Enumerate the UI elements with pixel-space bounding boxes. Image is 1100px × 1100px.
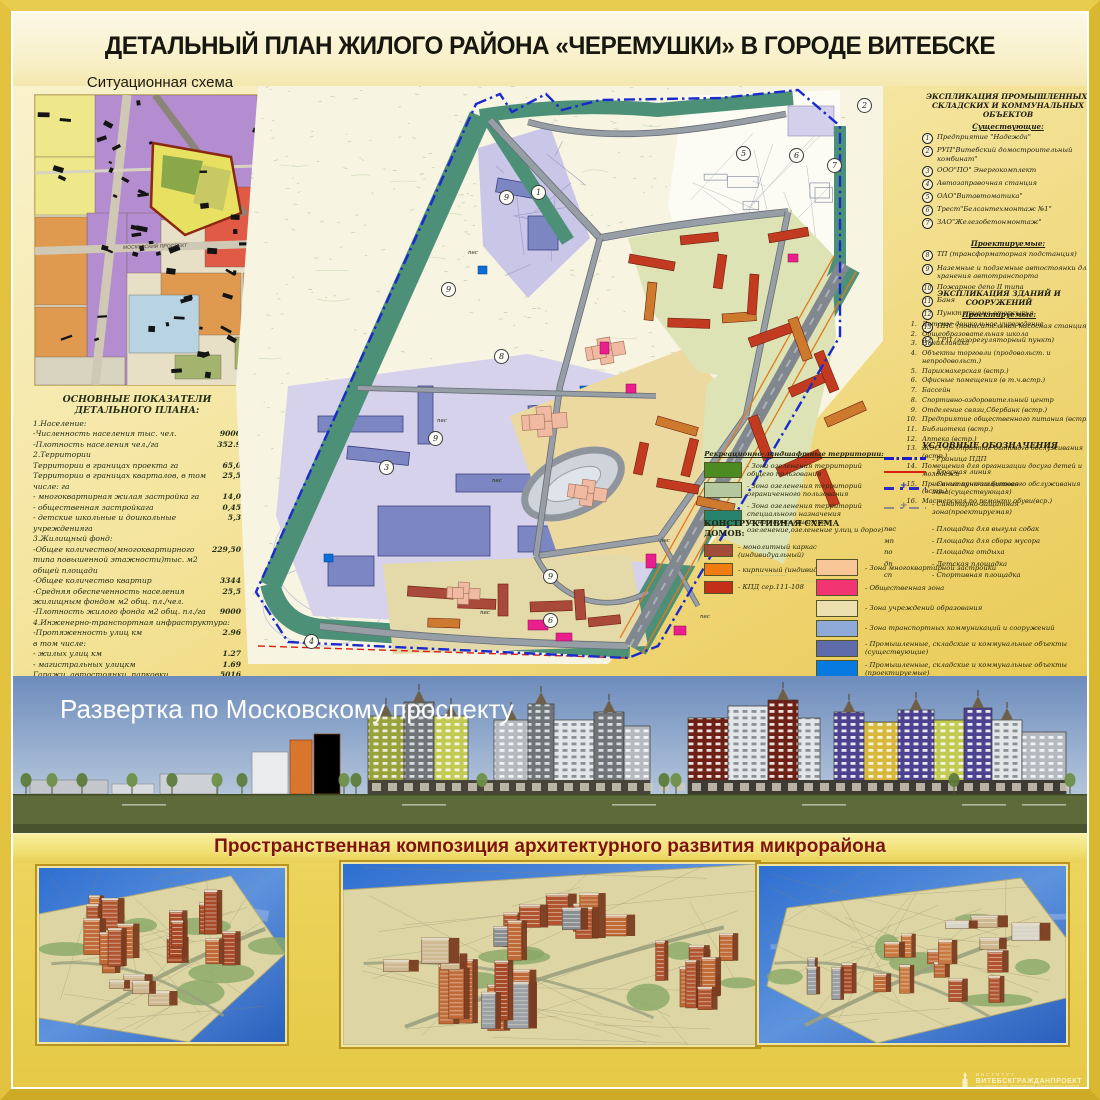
list-item: 6. Офисные помещения (в т.ч.встр.) xyxy=(903,377,1095,385)
item-number: 7. xyxy=(903,387,922,395)
industrial-explication-title2: СКЛАДСКИХ И КОММУНАЛЬНЫХ ОБЪЕКТОВ xyxy=(922,101,1094,119)
legend-label: - Зона озеленения территорий общего поль… xyxy=(747,462,884,478)
list-item: 7. Бассейн xyxy=(903,387,1095,395)
legend-label: - Промышленные, складские и коммунальные… xyxy=(865,661,1094,677)
indicator-row: -Плотность жилого фонда м2 общ. пл./га 9… xyxy=(33,607,241,617)
color-chip xyxy=(704,563,733,576)
list-item: 4. Объекты торговли (продовольст. и непр… xyxy=(903,350,1095,366)
item-label: Предприятие "Надежда" xyxy=(937,133,1031,141)
legend-item: - Зона транспортных коммуникаций и соору… xyxy=(816,620,1094,637)
indicator-label: -Плотность жилого фонда м2 общ. пл./га xyxy=(33,607,216,617)
item-number: 11. xyxy=(903,426,922,434)
list-item: 2. Общеобразовательная школа xyxy=(903,331,1095,339)
item-number: 5 xyxy=(922,192,933,203)
indicator-row: -Численность населения тыс. чел. 9000 xyxy=(33,429,241,439)
legend-label: - Промышленные, складские и коммунальные… xyxy=(865,640,1094,656)
indicator-row: -Протяженность улиц км 2.96 xyxy=(33,628,241,638)
color-chip xyxy=(816,559,858,576)
item-number: 4 xyxy=(922,179,933,190)
indicator-row: - общественная застройкага 0,45 xyxy=(33,503,241,513)
item-label: РУП"Витебский домостроительный комбинат" xyxy=(937,146,1094,163)
indicator-row: -Общее количество квартир 3344 xyxy=(33,576,241,586)
item-label: ТП (трансформаторная подстанция) xyxy=(937,250,1077,258)
symbol-row: - Санитарно-защитная зона(проектируемая) xyxy=(884,500,1096,516)
item-label: ОАО"Витавтоматика" xyxy=(937,192,1023,200)
indicator-label: Территории в границах кварталов, в том ч… xyxy=(33,471,219,492)
recreation-legend-title: Рекреационно-ландшафтные территории: xyxy=(704,450,884,458)
poster-root: ДЕТАЛЬНЫЙ ПЛАН ЖИЛОГО РАЙОНА «ЧЕРЕМУШКИ»… xyxy=(0,0,1100,1100)
color-chip xyxy=(704,462,742,478)
indicator-label: 1.Население: xyxy=(33,419,237,429)
item-number: 1. xyxy=(903,321,922,329)
indicator-label: Территории в границах проекта га xyxy=(33,461,219,471)
symbol-label: - Санитарно-защитная зона(проектируемая) xyxy=(932,500,1096,516)
map-badge: 6 xyxy=(789,148,804,163)
map-badge: 7 xyxy=(827,158,842,173)
map-badge: 9 xyxy=(543,569,558,584)
indicator-label: -Средняя обеспеченность населения жилищн… xyxy=(33,587,219,608)
item-number: 8 xyxy=(922,250,933,261)
list-item: 8 ТП (трансформаторная подстанция) xyxy=(922,250,1094,261)
legend-label: - Зона учреждений образования xyxy=(865,604,982,612)
legend-item: - Зона многоквартирной застройки xyxy=(816,559,1094,576)
map-area-label: пвс xyxy=(437,418,447,424)
buildings-planned-header: Проектируемые: xyxy=(903,310,1095,319)
list-item: 5. Парикмахерская (встр.) xyxy=(903,368,1095,376)
list-item: 5 ОАО"Витавтоматика" xyxy=(922,192,1094,203)
map-area-label: пвс xyxy=(468,250,478,256)
item-label: Общеобразовательная школа xyxy=(922,331,1028,339)
legend-item: - Зона озеленения территорий общего поль… xyxy=(704,462,884,478)
render-panel-1 xyxy=(37,866,287,1044)
item-number: 10. xyxy=(903,416,922,424)
abbr-row: по - Площадка отдыха xyxy=(884,548,1096,556)
color-chip xyxy=(816,579,858,596)
map-badge: 9 xyxy=(499,190,514,205)
list-item: 7 ЗАО"Железобетонмонтаж" xyxy=(922,218,1094,229)
item-number: 8. xyxy=(903,397,922,405)
indicator-label: - жилых улиц км xyxy=(33,649,219,659)
item-label: Библиотека (встр.) xyxy=(922,426,993,434)
abbr-row: пвс - Площадка для выгула собак xyxy=(884,525,1096,533)
indicator-row: Территории в границах кварталов, в том ч… xyxy=(33,471,241,492)
indicator-label: 3.Жилищный фонд: xyxy=(33,534,237,544)
institute-watermark: ИНСТИТУТ ВИТЕБСКГРАЖДАНПРОЕКТ узел архит… xyxy=(958,1072,1082,1090)
list-item: 1 Предприятие "Надежда" xyxy=(922,133,1094,144)
indicator-label: -Общее количество квартир xyxy=(33,576,216,586)
color-chip xyxy=(816,640,858,657)
item-number: 3. xyxy=(903,340,922,348)
symbol-label: - Санитарно-защитная зона(существующая) xyxy=(932,480,1096,496)
line-symbol xyxy=(884,484,926,493)
symbols-legend-title: УСЛОВНЫЕ ОБОЗНАЧЕНИЯ xyxy=(884,440,1096,450)
key-indicators-title: ОСНОВНЫЕ ПОКАЗАТЕЛИ ДЕТАЛЬНОГО ПЛАНА: xyxy=(33,394,241,416)
color-chip xyxy=(816,600,858,617)
indicator-label: в том числе: xyxy=(33,639,237,649)
item-label: Предприятие общественного питания (встр.… xyxy=(922,416,1091,424)
abbr-code: по xyxy=(884,548,926,556)
indicator-row: 1.Население: xyxy=(33,419,241,429)
indicator-label: -Протяженность улиц км xyxy=(33,628,219,638)
indicator-label: - многоквартирная жилая застройка га xyxy=(33,492,219,502)
map-badge: 5 xyxy=(736,146,751,161)
map-area-label: пвс xyxy=(480,610,490,616)
indicator-label: -Численность населения тыс. чел. xyxy=(33,429,216,439)
list-item: 8. Спортивно-оздоровительный центр xyxy=(903,397,1095,405)
symbol-row: - Красная линия xyxy=(884,467,1096,476)
item-number: 3 xyxy=(922,166,933,177)
line-symbol xyxy=(884,467,926,476)
list-item: 6 Трест"Белсантехмонтаж №1" xyxy=(922,205,1094,216)
map-badge: 4 xyxy=(304,634,319,649)
map-badge: 3 xyxy=(379,460,394,475)
color-chip xyxy=(816,620,858,637)
list-item: 4 Автозаправочная станция xyxy=(922,179,1094,190)
indicator-label: -Общее количество(многоквартирного типа … xyxy=(33,545,208,576)
item-label: Наземные и подземные автостоянки для хра… xyxy=(937,264,1094,281)
street-elevation: Развертка по Московскому проспекту xyxy=(12,676,1088,833)
color-chip xyxy=(704,581,733,594)
list-item: 10. Предприятие общественного питания (в… xyxy=(903,416,1095,424)
map-area-label: пвс xyxy=(700,614,710,620)
indicator-row: 4.Инженерно-транспортная инфраструктура: xyxy=(33,618,241,628)
line-symbol xyxy=(884,504,926,513)
indicator-label: -Плотность населения чел./га xyxy=(33,440,213,450)
symbol-row: - Граница ПДП xyxy=(884,454,1096,463)
composition-title: Пространственная композиция архитектурно… xyxy=(0,836,1100,858)
item-label: Детское дошкольное учреждение xyxy=(922,321,1044,329)
legend-item: - Зона озеленения территорий ограниченно… xyxy=(704,482,884,498)
elevation-title: Развертка по Московскому проспекту xyxy=(60,694,514,724)
item-label: Объекты торговли (продовольст. и непродо… xyxy=(922,350,1095,366)
list-item: 2 РУП"Витебский домостроительный комбина… xyxy=(922,146,1094,163)
construction-legend-title: КОНСТРУКТИВНАЯ СХЕМА ДОМОВ: xyxy=(704,518,879,538)
item-number: 9. xyxy=(903,407,922,415)
indicator-label: - детские школьные и дошкольные учрежден… xyxy=(33,513,224,534)
symbol-label: - Граница ПДП xyxy=(932,455,987,463)
indicator-label: 2.Территории xyxy=(33,450,237,460)
item-number: 5. xyxy=(903,368,922,376)
list-item: 3. Поликлиника xyxy=(903,340,1095,348)
abbr-label: - Площадка для выгула собак xyxy=(932,525,1039,533)
line-symbol xyxy=(884,454,926,463)
item-number: 2 xyxy=(922,146,933,157)
item-number: 6 xyxy=(922,205,933,216)
legend-label: - КПД сер.111-108 xyxy=(738,583,804,591)
item-label: ЗАО"Железобетонмонтаж" xyxy=(937,218,1042,226)
item-number: 9 xyxy=(922,264,933,275)
item-number: 6. xyxy=(903,377,922,385)
color-chip xyxy=(704,544,733,557)
symbols-line-items: - Граница ПДП - Красная линия - Санитарн… xyxy=(884,454,1096,516)
indicator-row: 3.Жилищный фонд: xyxy=(33,534,241,544)
indicator-row: -Плотность населения чел./га 352.9 xyxy=(33,440,241,450)
abbr-code: мп xyxy=(884,537,926,545)
item-number: 7 xyxy=(922,218,933,229)
institute-emblem-icon xyxy=(958,1072,972,1090)
abbr-code: пвс xyxy=(884,525,926,533)
legend-label: - Зона транспортных коммуникаций и соору… xyxy=(865,624,1055,632)
indicator-row: - детские школьные и дошкольные учрежден… xyxy=(33,513,241,534)
existing-list: 1 Предприятие "Надежда" 2 РУП"Витебский … xyxy=(922,133,1094,229)
indicator-row: 2.Территории xyxy=(33,450,241,460)
indicator-row: - магистральных улицкм 1.69 xyxy=(33,660,241,670)
item-number: 4. xyxy=(903,350,922,366)
legend-item: - Промышленные, складские и коммунальные… xyxy=(816,660,1094,677)
legend-label: - Зона озеленения территорий ограниченно… xyxy=(747,482,884,498)
item-number: 2. xyxy=(903,331,922,339)
legend-label: - Общественная зона xyxy=(865,584,944,592)
list-item: 9. Отделение связи,Сбербанк (встр.) xyxy=(903,407,1095,415)
symbol-label: - Красная линия xyxy=(932,468,991,476)
existing-header: Существующие: xyxy=(922,122,1094,131)
industrial-explication-title1: ЭКСПЛИКАЦИЯ ПРОМЫШЛЕННЫХ, xyxy=(922,92,1094,101)
indicator-row: -Средняя обеспеченность населения жилищн… xyxy=(33,587,241,608)
render-panel-3 xyxy=(757,864,1068,1045)
legend-item: - Промышленные, складские и коммунальные… xyxy=(816,640,1094,657)
watermark-caption: узел архитектурных, планировочных, конст… xyxy=(976,1085,1082,1089)
color-chip xyxy=(816,660,858,677)
indicator-row: -Общее количество(многоквартирного типа … xyxy=(33,545,241,576)
map-area-label: пвс xyxy=(660,538,670,544)
list-item: 1. Детское дошкольное учреждение xyxy=(903,321,1095,329)
map-badge: 9 xyxy=(428,431,443,446)
indicator-row: Территории в границах проекта га 65,0 xyxy=(33,461,241,471)
indicator-row: - многоквартирная жилая застройка га 14,… xyxy=(33,492,241,502)
indicator-label: - общественная застройкага xyxy=(33,503,219,513)
item-label: Автозаправочная станция xyxy=(937,179,1037,187)
map-area-label: пвс xyxy=(492,478,502,484)
abbr-row: мп - Площадка для сбора мусора xyxy=(884,537,1096,545)
indicator-row: - жилых улиц км 1.27 xyxy=(33,649,241,659)
indicator-label: - магистральных улицкм xyxy=(33,660,219,670)
list-item: 9 Наземные и подземные автостоянки для х… xyxy=(922,264,1094,281)
item-label: Бассейн xyxy=(922,387,951,395)
ground xyxy=(12,794,1088,824)
item-label: Отделение связи,Сбербанк (встр.) xyxy=(922,407,1047,415)
abbr-label: - Площадка для сбора мусора xyxy=(932,537,1040,545)
legend-label: - Зона многоквартирной застройки xyxy=(865,564,996,572)
item-label: Поликлиника xyxy=(922,340,969,348)
buildings-explication-title: ЭКСПЛИКАЦИЯ ЗДАНИЙ И СООРУЖЕНИЙ xyxy=(903,289,1095,307)
map-badge: 1 xyxy=(531,185,546,200)
list-item: 11. Библиотека (встр.) xyxy=(903,426,1095,434)
page-title: ДЕТАЛЬНЫЙ ПЛАН ЖИЛОГО РАЙОНА «ЧЕРЕМУШКИ»… xyxy=(75,32,1026,61)
item-number: 1 xyxy=(922,133,933,144)
item-label: Парикмахерская (встр.) xyxy=(922,368,1009,376)
list-item: 3 ООО"ПО" Энергокомплект xyxy=(922,166,1094,177)
planned-header: Проектируемые: xyxy=(922,239,1094,248)
item-label: Офисные помещения (в т.ч.встр.) xyxy=(922,377,1045,385)
item-label: ООО"ПО" Энергокомплект xyxy=(937,166,1036,174)
map-badge: 8 xyxy=(494,349,509,364)
legend-item: - Зона учреждений образования xyxy=(816,600,1094,617)
map-badge: 9 xyxy=(441,282,456,297)
map-badge: 2 xyxy=(857,98,872,113)
map-badge: 6 xyxy=(543,613,558,628)
symbol-row: - Санитарно-защитная зона(существующая) xyxy=(884,480,1096,496)
item-label: Спортивно-оздоровительный центр xyxy=(922,397,1054,405)
item-label: Трест"Белсантехмонтаж №1" xyxy=(937,205,1052,213)
abbr-label: - Площадка отдыха xyxy=(932,548,1005,556)
render-panel-2 xyxy=(341,862,759,1047)
indicator-label: 4.Инженерно-транспортная инфраструктура: xyxy=(33,618,237,628)
color-chip xyxy=(704,482,742,498)
legend-item: - Общественная зона xyxy=(816,579,1094,596)
key-indicators: ОСНОВНЫЕ ПОКАЗАТЕЛИ ДЕТАЛЬНОГО ПЛАНА: 1.… xyxy=(33,394,241,723)
indicator-row: в том числе: xyxy=(33,639,241,649)
